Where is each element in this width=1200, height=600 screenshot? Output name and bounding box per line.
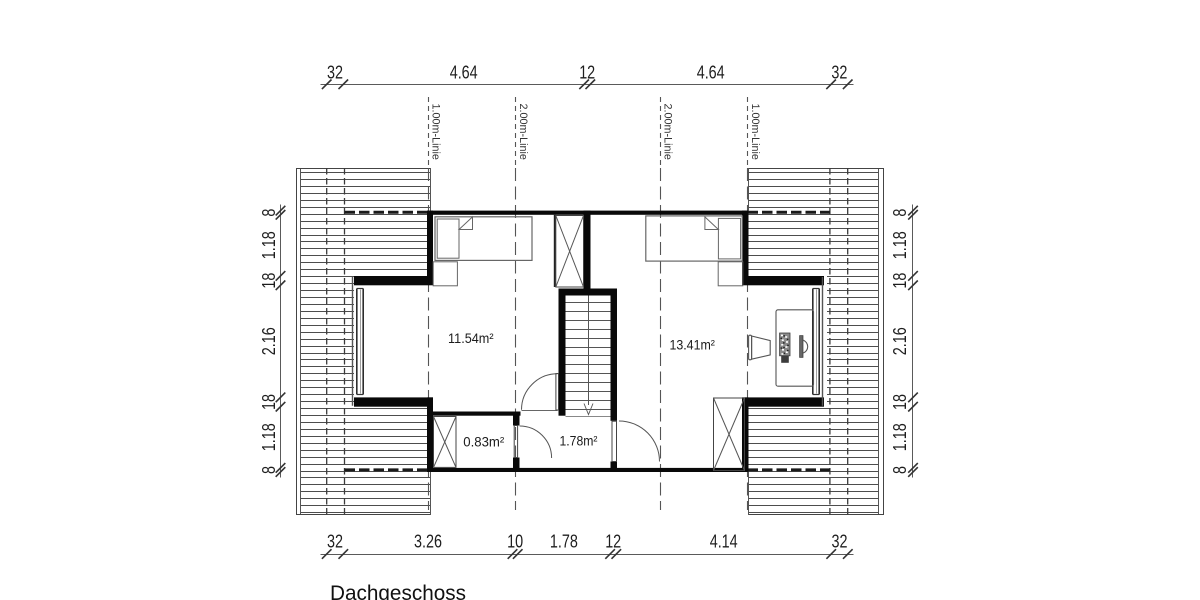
svg-text:2.16: 2.16 [259, 327, 279, 355]
svg-text:4.14: 4.14 [710, 532, 738, 552]
svg-text:8: 8 [259, 209, 279, 217]
svg-text:1.78m²: 1.78m² [560, 433, 598, 448]
svg-text:1.00m-Linie: 1.00m-Linie [749, 104, 761, 160]
svg-text:1.18: 1.18 [259, 423, 279, 451]
svg-text:1.18: 1.18 [890, 231, 910, 259]
svg-text:4.64: 4.64 [450, 62, 478, 82]
svg-text:18: 18 [259, 394, 279, 410]
svg-text:13.41m²: 13.41m² [669, 337, 715, 352]
svg-text:11.54m²: 11.54m² [448, 331, 494, 346]
svg-text:10: 10 [507, 532, 523, 552]
svg-text:32: 32 [832, 532, 848, 552]
svg-text:2.00m-Linie: 2.00m-Linie [517, 104, 529, 160]
svg-text:2.00m-Linie: 2.00m-Linie [661, 104, 673, 160]
svg-text:1.00m-Linie: 1.00m-Linie [429, 104, 441, 160]
svg-text:2.16: 2.16 [890, 327, 910, 355]
svg-text:1.18: 1.18 [890, 423, 910, 451]
svg-text:Dachgeschoss: Dachgeschoss [330, 582, 466, 600]
svg-text:8: 8 [890, 466, 910, 474]
svg-text:32: 32 [831, 62, 847, 82]
svg-text:8: 8 [890, 209, 910, 217]
svg-text:12: 12 [605, 532, 621, 552]
svg-text:3.26: 3.26 [414, 532, 442, 552]
svg-text:4.64: 4.64 [697, 62, 725, 82]
svg-text:32: 32 [327, 62, 343, 82]
svg-text:1.18: 1.18 [259, 231, 279, 259]
svg-text:18: 18 [890, 273, 910, 289]
svg-text:12: 12 [579, 62, 595, 82]
svg-text:0.83m²: 0.83m² [463, 434, 504, 449]
svg-text:32: 32 [327, 532, 343, 552]
svg-text:18: 18 [259, 273, 279, 289]
svg-text:18: 18 [890, 394, 910, 410]
svg-text:1.78: 1.78 [550, 532, 578, 552]
svg-text:8: 8 [259, 466, 279, 474]
